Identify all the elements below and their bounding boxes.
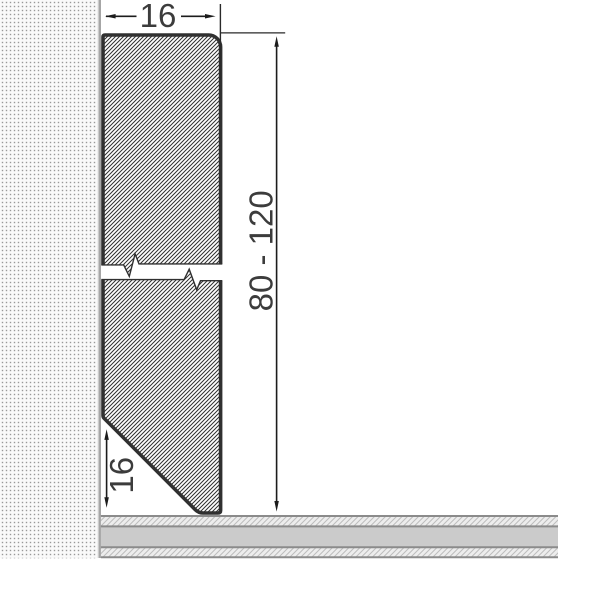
svg-text:16: 16 (103, 457, 140, 494)
svg-text:80 - 120: 80 - 120 (243, 190, 280, 311)
svg-text:16: 16 (140, 0, 177, 34)
